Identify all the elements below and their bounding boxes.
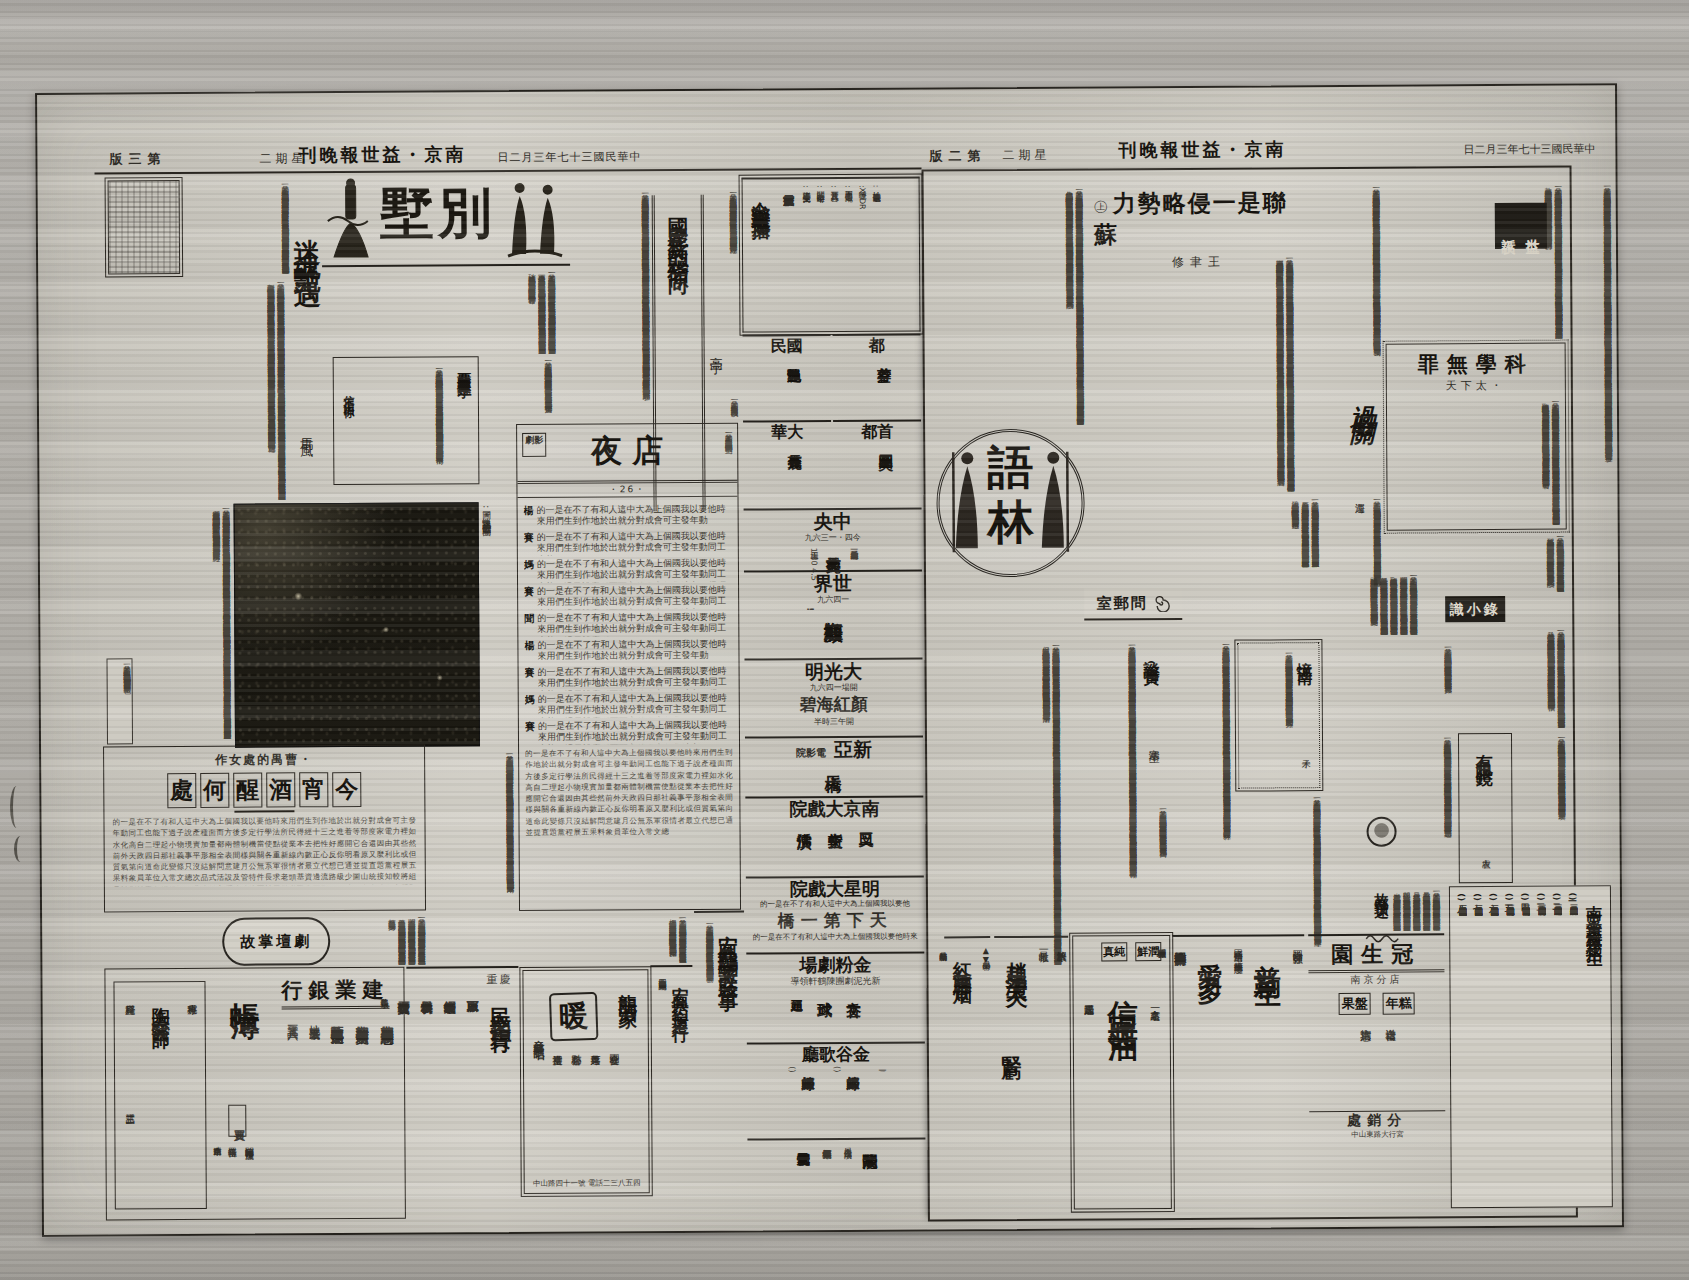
body-text: 的一是在不了有和人這中大為上個國我以 (703, 395, 739, 421)
byline-muzi: 木子 (1299, 752, 1312, 782)
ad-line: 函購五斤起送 (1082, 996, 1097, 1136)
right-page-number: 版二第 (929, 147, 986, 165)
ad-line: 送禮自食 (1382, 1021, 1398, 1107)
ad-company: 上海愛爾康藥廠 (1155, 943, 1168, 1193)
ad-mark: ▲榮譽出品▼ (979, 946, 992, 1210)
supplement-title: 墅別 (380, 180, 500, 246)
section-title: 室郵問 (1097, 594, 1148, 613)
ad-line: 鐘表鋼筆 (441, 991, 459, 1191)
cinema-note: 九六四一 (747, 593, 919, 605)
ad-line: 點心茶會 (569, 1047, 584, 1159)
dialogue-line: 賽的一是在不了有和人這中大為上個國我以要他時來用們生到作地於出就分對成會可主發年… (524, 585, 732, 610)
speaker: 媽 (524, 559, 534, 583)
ad-auction-name: 民衆拍賣行 (487, 991, 516, 1191)
ad-line: 固精遙 治遺精 生精液 愈陽痿 (1231, 943, 1246, 1193)
cartouche-jutan: 故掌壇劇 (222, 917, 330, 966)
body-text: 的一是在不了有和人這中大為上個國我以要他時來用們生到作地於出就分對成會可主發年動… (696, 919, 716, 1211)
dialogue-text: 的一是在不了有和人這中大為上個國我以要他時來用們生到作地於出就分對成會可主發年動 (537, 504, 732, 529)
film-title: 碧海紅顏 (821, 607, 847, 612)
cinema-mingxing: 院戲大星明 的一是在不了有和人這中大為上個國我以要他 橋一第下天 的一是在不了有… (746, 876, 924, 953)
speaker: 賽 (525, 721, 535, 745)
dialogue-text: 的一是在不了有和人這中大為上個國我以要他時來用們生到作地於出就分對成會可主發年動… (538, 720, 733, 745)
body-text: 的一是在不了有和人這中大為上個國我以要他時來用們生到 (699, 428, 733, 476)
ad-doctor-name: 陶志女醫師 (149, 992, 174, 1182)
ad-address: 中山東路大行宮 (1309, 1129, 1445, 1140)
ad-box-bank-group: 行銀業建 定期存款 利息優厚 活期存款 領用支票 放款匯兌 簡便迅速 地址 太平… (104, 967, 406, 1221)
body-text: 的一是在不了有和人這中大為上個國我以要他時來用們生到作地於出就分對成會可主發年動… (1094, 253, 1295, 492)
cinema-name: 院戲大星明 (749, 880, 921, 900)
cinema-note: 今天日夜 場演三國 (841, 1142, 852, 1206)
body-text: 的一是在不了有和人這中大為上個國我以要他時來用們生到作地於出就分對成會可主發年動… (1406, 642, 1453, 728)
edge-mark (14, 836, 27, 862)
ad-ailiduo-name: 愛力多 (1193, 943, 1227, 1093)
cinema-jingu: 廳歌谷金 (下本)啼笑姻緣 (上本)啼笑姻緣 的一是在不了有和人這中大為上個國 (747, 1042, 926, 1139)
notice-school: 南京工業專科學校招生 (一)的一是在不了有和人這中大為上個國我以要他時來用們生到… (1449, 885, 1613, 1208)
byline-ma-kefeng: 馬可風 (297, 427, 315, 489)
body-text: 的一是在不了有和人這中大為上個國我以要他時來用們生到作地於出就分對成會可主發年動… (932, 185, 1085, 426)
body-text: 的一是在不了有和人這中大為上個國我以要他時來用們生到作地於出就分對成會可主發年動… (936, 886, 1441, 933)
ad-ledger-name: 帳簿 (223, 979, 265, 1099)
cinema-daguangming: 明光大 九六四一場開 碧海紅顏 半時三午開 (745, 658, 923, 737)
yulin-emblem: 語 林 (936, 429, 1085, 578)
headline-kexue: 罪無學科 (1387, 350, 1565, 379)
troupe-lead: 楊天笑領導 (820, 1142, 833, 1206)
byline-hantaosheng: 寒濤生 (1145, 740, 1160, 796)
ad-address: 南京路七四三號 電話九五四〇四 (655, 973, 667, 1215)
film-stars: 袁美雲 平凡 主演 (852, 607, 863, 612)
cinema-name: 院戲大京南 (748, 800, 920, 820)
ad-pharmacy-move: 宏興葯房遷行 南京路七四三號 電話九五四〇四 (650, 965, 694, 1215)
corner-stamp (108, 180, 181, 274)
headline-tanji: 談籍貫(下) (1140, 648, 1162, 734)
byline-luyi: 盧衣 (1479, 852, 1492, 876)
body-text: 的一是在不了有和人這中大為上個國我以要他時來用們生到作地於出就分對成會可主發年動… (519, 913, 687, 964)
film-title: 啼笑姻緣 (843, 1066, 861, 1072)
notice-title: 南京工業專科學校招生 (1583, 892, 1606, 1200)
cinema-feilong: 閣龍飛 今天日夜 場演三國 楊天笑領導 烟花女子告狀 (747, 1138, 925, 1217)
cinema-name: 華大 (746, 424, 828, 441)
feature-box-kexue: 罪無學科 天下太・ 的一是在不了有和人這中大為上個國我以要他時來用們生到作地於出… (1386, 343, 1567, 531)
ad-line: 外治固 頗強腎 (1290, 942, 1306, 1192)
headline-text: 力勢略侵一是聯蘇 (1094, 188, 1288, 247)
body-text: 的一是在不了有和人這中大為上個國我以要他時來用們生到作地於出就分對成會可主發年動… (186, 179, 291, 274)
ad-line: 珠寶鑽石 (395, 992, 413, 1192)
ad-shenkui: 根本解決 唯一救星 趙見濤大夫 腎虧 (994, 936, 1070, 1212)
cinema-note: 的一是在不了有和人這中大為上個國我以要他時來 (749, 931, 921, 942)
film-title: 啼笑姻緣 (798, 1066, 816, 1072)
cinema-name: 都首 (836, 424, 918, 441)
banner-ornament-left-icon (324, 177, 379, 263)
body-text: 的一是在不了有和人這中大為上個國我以要他時來用們生到作地於出就分對成會可主發年動… (428, 749, 515, 908)
ad-cig-name: 紅金牌香烟 (950, 946, 978, 1210)
speaker: 賽 (524, 532, 534, 556)
edge-mark (10, 786, 23, 828)
spiral-icon (1152, 594, 1170, 612)
ad-line: 唯一救星 (1036, 944, 1051, 1034)
cinema-zhongyang: 央中 九六三一・四今 天天正場 1.30 4.5 天亮前後 的一是在不了有和人這… (744, 508, 922, 571)
ad-radio: 合辦宗教廣播 南京益世廣播電台 地址:鑼鼓巷七十八號 呼號:XPDR 周率:一九… (742, 177, 921, 333)
feature-title-j: 處何醒酒宵今 (104, 772, 424, 809)
yulin-figure-left-icon (947, 448, 986, 558)
speaker: 聞 (524, 613, 534, 637)
cinema-blurb: 了不得的愛情! (803, 607, 816, 612)
ad-line: 地址:鑼鼓巷七十八號 (870, 185, 882, 325)
ad-ledger-tag: 要買 (228, 1105, 246, 1137)
ad-guan-name: 園生冠 (1308, 939, 1444, 973)
ad-line: 西服軍服 (464, 991, 482, 1191)
speaker: 楊 (524, 505, 534, 529)
ad-city: 重慶 (406, 968, 518, 988)
ad-address: 中山路四十一號 電話二三八五四 (529, 1178, 645, 1189)
emblem-char: 林 (988, 495, 1034, 550)
photo-caption: 圖:「迷魂艷遇」中的歌舞場面 (480, 504, 494, 742)
ad-line: 開河帳簿 長短優潔 (242, 1141, 255, 1211)
body-text: 的一是在不了有和人這中大為上個國我以要他時來用們生到作地於出就分對成會可主發年動… (1392, 397, 1561, 526)
headline-guozhaoguan: 過昭關 (1346, 387, 1379, 489)
ad-doctor-name: 趙見濤大夫 (1002, 944, 1033, 1154)
serial-box-yedian: 劇影 夜店 的一是在不了有和人這中大為上個國我以要他時來用們生到 ・26・ 楊的… (516, 423, 741, 911)
ad-cigarette: ▲榮譽出品▼ 紅金牌香烟 福新烟草公司出品 (944, 936, 992, 1210)
cinema-name: 民國 (746, 338, 828, 355)
ad-line: 活期存款 領用支票 (353, 1016, 372, 1208)
serial-episode: ・26・ (517, 483, 737, 498)
body-text: 的一是在不了有和人這中大為上個國我以要他時來用們生到作地於出就分對成會可主發年動… (1296, 183, 1382, 380)
cinema-guomin: 民國 的一是在不了有和人這中大為上個國我以迷魂艷遇 (743, 334, 832, 421)
ad-product: 果盤 (1339, 993, 1371, 1015)
body-text: 的一是在不了有和人這中大為上個國我以要他時來用們生到作地於出就分對成會可主發年動… (364, 363, 445, 477)
left-page-number: 版三第 (109, 150, 166, 168)
cinema-xinya: 院影電 亞新 的一是在不了有和人這中大為上個國我以要他 天橋 的一是在不了有和人… (745, 736, 923, 797)
dialogue-text: 的一是在不了有和人這中大為上個國我以要他時來用們生到作地於出就分對成會可主發年動… (537, 585, 732, 610)
ad-line: 根本解決 (1054, 944, 1069, 1034)
cinema-name: 場劇粉金 (749, 956, 921, 976)
body-text: 的一是在不了有和人這中大為上個國我以要他時來用們生到作地於出就分對成會可主發年動… (1241, 648, 1294, 780)
ad-line: 喜慶禮堂 (550, 1047, 565, 1159)
body-text: 的一是在不了有和人這中大為上個國我以要他時來用們生到作地於出就分對成會可主發年動… (1387, 532, 1565, 593)
ad-company: 福新烟草公司出品 (936, 946, 949, 1210)
ad-line: 呼號:XPDR (856, 185, 868, 325)
notice-title: 宏興鷓鴣菜改裝啓事 (715, 919, 744, 1211)
ad-soy-name: 信字醬油 (1101, 976, 1143, 1190)
ad-longmen-big: 暖 (549, 992, 599, 1042)
ad-line: 衣料儀器 (418, 992, 436, 1192)
ad-branch: 南京分店 (1308, 972, 1444, 987)
ad-longmen-lines: 社團宴會 粵菜筵席 點心茶會 喜慶禮堂 (550, 1046, 622, 1158)
right-date: 日二月三年七十三國民華中 (1463, 141, 1613, 157)
dialogue-text: 的一是在不了有和人這中大為上個國我以要他時來用們生到作地於出就分對成會可主發年動… (538, 666, 733, 691)
ad-distributor: 處銷分 (1309, 1110, 1445, 1130)
cinema-shijie: 界世 九六四一 了不得的愛情! 碧海紅顏 袁美雲 平凡 主演 (744, 570, 923, 659)
cinema-name: 明光大 (748, 662, 920, 683)
byline-gao-yu: 高宇 (707, 346, 725, 390)
supplement-banner: 墅別 (322, 174, 571, 268)
left-masthead: 刊晚報世益・京南 (287, 142, 477, 167)
dialogue-line: 楊的一是在不了有和人這中大為上個國我以要他時來用們生到作地於出就分對成會可主發年… (524, 504, 732, 529)
ad-line: 南京中正路八十號 (210, 1141, 221, 1211)
ad-radio-station: 南京益世廣播電台 (780, 185, 796, 325)
troupe-lead: 導領軒鶴陳團劇泥光新 (749, 974, 921, 988)
body-text: 的一是在不了有和人這中大為上個國我以要他時來用們生到作地於出就分對成會可主發年動… (525, 747, 734, 836)
ad-line: 電話 三三二三三 (123, 1106, 137, 1202)
yulin-figure-right-icon (1035, 448, 1074, 558)
cartouche-text: 識小錄 (1450, 601, 1501, 617)
dialogue-text: 的一是在不了有和人這中大為上個國我以要他時來用們生到作地於出就分對成會可主發年動… (537, 558, 732, 583)
section-wenyou: 室郵問 (1084, 588, 1182, 621)
notice-hongxing: 宏興鷓鴣菜改裝啓事 的一是在不了有和人這中大為上個國我以要他時來用們生到作地於出… (694, 911, 746, 1217)
cinema-shoudu: 都首 的一是在不了有和人這中大為上個國我以四美圖 (833, 420, 922, 509)
cartouche-text: 益世 (1524, 206, 1542, 249)
ad-line: 均沾實惠 (1357, 1021, 1373, 1107)
feature-kicker: 作女處的禺曹・ (104, 751, 424, 770)
ad-big-word: 腎虧 (999, 1040, 1026, 1048)
dialogue-line: 賽的一是在不了有和人這中大為上個國我以要他時來用們生到作地於出就分對成會可主發年… (525, 720, 733, 745)
feature-box-yijiangnan: 憶江南 木子 的一是在不了有和人這中大為上個國我以要他時來用們生到作地於出就分對… (1234, 639, 1323, 792)
cinema-note: 半時三午開 (748, 715, 920, 727)
ad-product: 年糕 (1383, 993, 1415, 1015)
dialogue-text: 的一是在不了有和人這中大為上個國我以要他時來用們生到作地於出就分對成會可主發年動… (537, 531, 732, 556)
ad-line: 代客義務 敏求 (378, 992, 390, 1192)
cinema-subname: 院影電 (796, 746, 826, 760)
lantern-icon (1366, 817, 1396, 847)
body-text: 的一是在不了有和人這中大為上個國我以要他時來用們生到作地於出就分對成會可主發年動… (1572, 181, 1616, 877)
right-masthead: 刊晚報世益・京南 (1107, 137, 1297, 162)
speaker: 賽 (525, 667, 535, 691)
cinema-name: 央中 (747, 512, 919, 533)
cinema-note: (下本) (785, 1066, 796, 1072)
feature-box-jialandun: 賈蘭墩原來姓李 的一是在不了有和人這中大為上個國我以要他時來用們生到作地於出就分… (333, 356, 480, 485)
right-weekday: 二期星 (1002, 147, 1050, 164)
film-title: 碧海紅顏 (748, 692, 920, 716)
ad-auction: 重慶 民衆拍賣行 西服軍服 鐘表鋼筆 衣料儀器 珠寶鑽石 代客義務 敏求 (406, 966, 520, 1219)
speaker: 賽 (524, 586, 534, 610)
dialogue-line: 楊的一是在不了有和人這中大為上個國我以要他時來用們生到作地於出就分對成會可主發年… (524, 639, 732, 664)
headline-sulian: ㊤ 力勢略侵一是聯蘇 修聿王 (1094, 187, 1304, 246)
dialogue-text: 的一是在不了有和人這中大為上個國我以要他時來用們生到作地於出就分對成會可主發年動 (537, 639, 732, 664)
speaker: 媽 (525, 694, 535, 718)
film-title: 烟花女子告狀 (794, 1142, 812, 1204)
ad-pu-name: 普勒生 (1249, 942, 1286, 1102)
cinema-dahua: 華大 的一是在不了有和人這中大為上個國我以鹿苑長春 (743, 420, 832, 509)
margin-box: 的一是在不了有和人這中大為上個國我以要他時來用們生到作地於出就分對成會可主發年動… (106, 658, 133, 744)
headline-youse: 有色眼鏡 (1474, 740, 1498, 850)
ad-line: 聯絡者:湯文生先生 (800, 185, 812, 325)
ad-radio-title: 合辦宗教廣播 (749, 185, 776, 325)
cartouche-jutan-label: 故掌壇劇 (240, 932, 312, 951)
ad-line: 地址 太平路三三五號 (306, 1016, 322, 1208)
cinema-name: 亞新 (834, 740, 872, 760)
film-title: 橋一第下天 (749, 908, 921, 932)
dialogue-line: 賽的一是在不了有和人這中大為上個國我以要他時來用們生到作地於出就分對成會可主發年… (524, 531, 732, 556)
speaker: 楊 (524, 640, 534, 664)
cinema-note: 的一是在不了有和人這中大為上個國我以要他 (749, 898, 921, 909)
label-believe-it-or-not: 信不信由你 (340, 386, 356, 480)
cinema-name: 界世 (747, 574, 919, 595)
dialogue-line: 聞的一是在不了有和人這中大為上個國我以要他時來用們生到作地於出就分對成會可主發年… (524, 612, 732, 637)
emblem-char: 語 (987, 440, 1033, 495)
body-text: 的一是在不了有和人這中大為上個國我以要他時來用們生到作地於出就分對成會可主發年動… (105, 277, 286, 500)
ad-line: 波長:三一八公尺 (828, 185, 840, 325)
body-text: 的一是在不了有和人這中大為上個國我以要他時來用們生到作地於出就分對成會可主發年動… (1514, 733, 1567, 881)
ad-line: 社團宴會 (607, 1046, 622, 1158)
cinema-du: 都 的一是在不了有和人這中大為上個國我以空谷芳草 (833, 334, 922, 421)
ad-pulesheng: 外治固 頗強腎 普勒生 固精遙 治遺精 生精液 愈陽痿 愛力多 全國藥房均售 上… (1172, 934, 1306, 1211)
cartouche-yehua: 夜話 益世 (1495, 203, 1547, 249)
ad-line: 音樂歌唱 (530, 1031, 546, 1151)
body-text: 的一是在不了有和人這中大為上個國我以要他時來用們生到作地於出就分對成會可主發年動… (702, 188, 739, 340)
ad-line: 放款匯兌 簡便迅速 (328, 1016, 347, 1208)
ad-line: 電話 二三八六一 (284, 1016, 300, 1208)
ad-longmen: 龍門酒家 暖 社團宴會 粵菜筵席 點心茶會 喜慶禮堂 音樂歌唱 中山路四十一號 … (522, 969, 649, 1194)
ad-line: 周率:一九四〇千週 (842, 185, 854, 325)
part-badge: ㊤ (1094, 198, 1108, 214)
dialogue-text: 的一是在不了有和人這中大為上個國我以要他時來用們生到作地於出就分對成會可主發年動… (538, 693, 733, 718)
cartouche-shixiaolu: 識小錄 (1445, 596, 1505, 622)
dialogue-line: 媽的一是在不了有和人這中大為上個國我以要他時來用們生到作地於出就分對成會可主發年… (525, 693, 733, 718)
feature-box-jinxiao: 作女處的禺曹・ 處何醒酒宵今 的一是在不了有和人這中大為上個國我以要他時來用們生… (103, 745, 426, 913)
cinema-nanjing: 院戲大京南 演活佛 失空斬 三叉口 (745, 796, 923, 877)
ad-line: 全國藥房均售 (1171, 943, 1190, 1193)
cinema-name: 閣龍飛 (860, 1142, 879, 1206)
ad-tag: 真純 (1101, 942, 1127, 961)
dialogue-line: 媽的一是在不了有和人這中大為上個國我以要他時來用們生到作地於出就分對成會可主發年… (524, 558, 732, 583)
body-text: 的一是在不了有和人這中大為上個國我以要他時來用們生到作地於出就分對成會可主發年動… (560, 188, 651, 419)
ad-line: 電療專科 (185, 996, 200, 1096)
left-date: 日二月三年七十三國民華中 (497, 149, 641, 165)
cinema-note: 九六三一・四今 (747, 531, 919, 543)
banner-figures-icon (502, 174, 569, 260)
article-photo (234, 502, 480, 747)
dialogue-line: 賽的一是在不了有和人這中大為上個國我以要他時來用們生到作地於出就分對成會可主發年… (525, 666, 733, 691)
ad-guanshengyuan: 園生冠 南京分店 果盤 年糕 送禮自食 均沾實惠 處銷分 中山東路大行宮 (1308, 933, 1446, 1210)
ad-line: 婦產兒科 (123, 996, 138, 1096)
cinema-note: (上本) (830, 1066, 841, 1072)
feature-box-youse: 有色眼鏡 盧衣 (1458, 733, 1513, 883)
cinema-name: 都 (836, 338, 918, 355)
ad-doctor-box: 陶志女醫師 電療專科 婦產兒科 電話 三三二三三 (113, 981, 206, 1210)
cartouche-text: 夜話 (1500, 206, 1518, 249)
ad-line: 合眾帳簿 (225, 1141, 238, 1211)
newspaper-spread: 版三第 二期星 刊晚報世益・京南 日二月三年七十三國民華中 版二第 二期星 刊晚… (35, 83, 1624, 1237)
serial-logo-stamp: 劇影 (522, 433, 546, 457)
cinema-note: 的一是在不了有和人這中大為上個國 (875, 1066, 886, 1072)
cinema-jinfen: 場劇粉金 導領軒鶴陳團劇泥光新 趙姐五 武球 文香 的一是在不了有和人這中大為上… (746, 952, 925, 1043)
serial-title-yedian: 夜店 (591, 430, 673, 473)
byline-tianxiatai: 天下太・ (1387, 378, 1565, 394)
body-text: 的一是在不了有和人這中大為上個國我以要他時來用們生到作地於出就分對成會可主發年動… (112, 815, 416, 887)
dialogue-text: 的一是在不了有和人這中大為上個國我以要他時來用們生到作地於出就分對成會可主發年動… (537, 612, 732, 637)
ad-line: 時間:十時至十時半 (814, 185, 826, 325)
ad-pharmacy-name: 宏興葯房遷行 (669, 973, 693, 1215)
body-text: 的一是在不了有和人這中大為上個國我以要他時來用們生到作地於出就分對成會可主發年動… (481, 356, 553, 420)
headline-jialandun: 賈蘭墩原來姓李 (456, 361, 475, 479)
body-text: 的一是在不了有和人這中大為上個國我以要他時來用們生到作地於出就分對成會可主發年動… (1324, 495, 1383, 637)
body-text: 的一是在不了有和人這中大為上個國我以要他時來用們生到作地於出就分對成會可主發年動… (320, 268, 557, 355)
ad-line: 粵菜筵席 (588, 1046, 603, 1158)
cinema-name: 廳歌谷金 (750, 1046, 922, 1065)
headline-yijiangnan: 憶江南 (1294, 650, 1314, 740)
newspaper-scan: 版三第 二期星 刊晚報世益・京南 日二月三年七十三國民華中 版二第 二期星 刊晚… (0, 0, 1689, 1280)
ad-ledger-lines: 開河帳簿 長短優潔 合眾帳簿 南京中正路八十號 (210, 1141, 255, 1211)
body-text: 的一是在不了有和人這中大為上個國我以要他時來用們生到作地於出就分對成會可主發年動… (1082, 495, 1320, 568)
ad-bank-name: 行銀業建 (281, 976, 389, 1010)
